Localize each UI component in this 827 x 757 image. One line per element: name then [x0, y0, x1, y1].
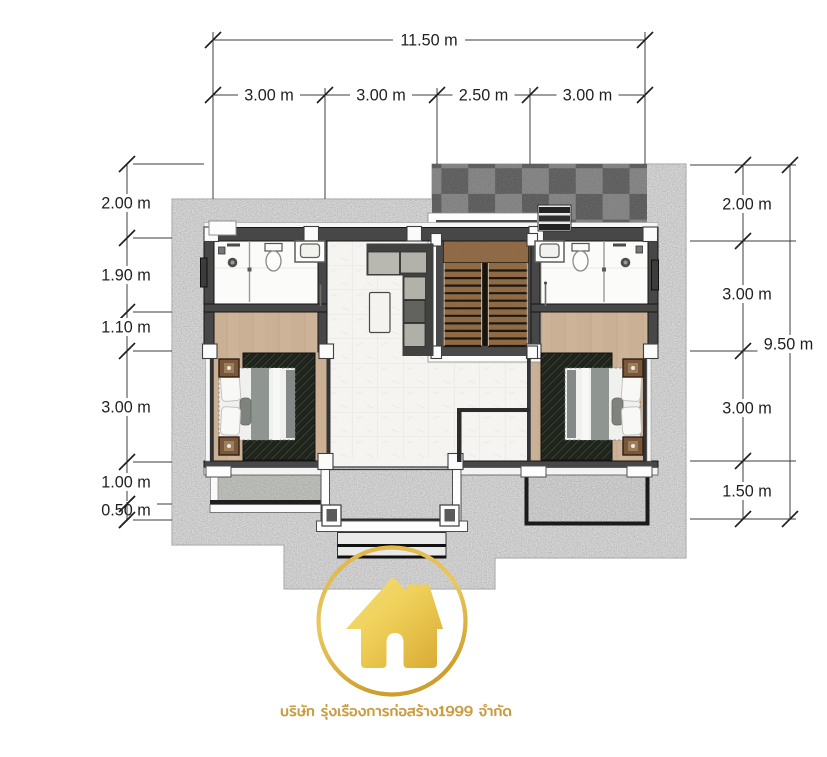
- svg-text:3.00 m: 3.00 m: [563, 87, 613, 105]
- svg-text:3.00 m: 3.00 m: [722, 286, 772, 304]
- svg-text:1.00 m: 1.00 m: [101, 474, 151, 492]
- svg-text:3.00 m: 3.00 m: [722, 400, 772, 418]
- svg-text:9.50 m: 9.50 m: [764, 336, 814, 354]
- svg-text:3.00 m: 3.00 m: [356, 87, 406, 105]
- svg-text:2.50 m: 2.50 m: [459, 87, 509, 105]
- svg-text:1.50 m: 1.50 m: [722, 483, 772, 501]
- svg-text:3.00 m: 3.00 m: [101, 399, 151, 417]
- svg-text:1.90 m: 1.90 m: [101, 267, 151, 285]
- svg-text:1.10 m: 1.10 m: [101, 319, 151, 337]
- svg-text:3.00 m: 3.00 m: [244, 87, 294, 105]
- svg-text:11.50 m: 11.50 m: [400, 32, 457, 50]
- svg-text:2.00 m: 2.00 m: [722, 196, 772, 214]
- svg-text:2.00 m: 2.00 m: [101, 195, 151, 213]
